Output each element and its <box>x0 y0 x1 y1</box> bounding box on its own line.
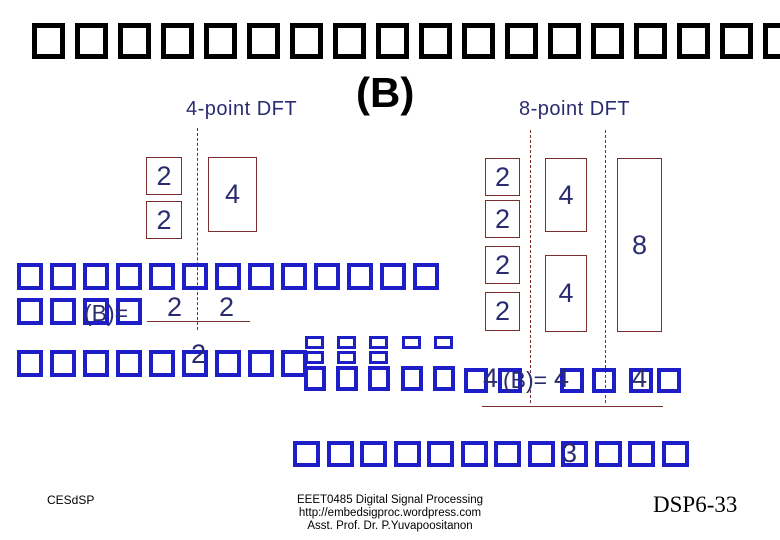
tofu-glyph-box <box>50 298 76 325</box>
paragraph1-b-equals-text: (B)= <box>84 302 128 325</box>
tofu-glyph-box <box>419 23 452 59</box>
tofu-glyph-box <box>83 350 109 377</box>
tofu-glyph-box <box>247 23 280 59</box>
tofu-glyph-box <box>281 263 307 290</box>
tofu-glyph-box <box>215 350 241 377</box>
tofu-glyph-box <box>494 441 521 467</box>
tofu-glyph-box <box>376 23 409 59</box>
tofu-glyph-box <box>347 263 373 290</box>
fraction2-bar <box>482 406 663 407</box>
left-dft-label: 4-point DFT <box>186 98 297 121</box>
tofu-glyph-box <box>75 23 108 59</box>
tofu-glyph-box <box>337 351 356 364</box>
tofu-glyph-box <box>116 350 142 377</box>
right-stage-divider-line-1 <box>530 130 531 403</box>
tofu-glyph-box <box>83 263 109 290</box>
right-dft-label: 8-point DFT <box>519 98 630 121</box>
tofu-glyph-box <box>149 350 175 377</box>
tofu-glyph-box <box>591 23 624 59</box>
footer-left-text: CESdSP <box>47 494 94 508</box>
tofu-glyph-box <box>17 263 43 290</box>
tofu-glyph-box <box>628 441 655 467</box>
right-8pt-dft-box: 8 <box>617 158 662 332</box>
fraction1-numerator-left: 2 <box>167 294 182 321</box>
footer-slide-number: DSP6-33 <box>653 492 737 518</box>
tofu-glyph-box <box>394 441 421 467</box>
tofu-glyph-box <box>720 23 753 59</box>
tofu-glyph-box <box>427 441 454 467</box>
tofu-glyph-box <box>401 366 423 391</box>
tofu-glyph-box <box>215 263 241 290</box>
tofu-glyph-box <box>657 368 681 393</box>
tofu-glyph-box <box>50 350 76 377</box>
tofu-glyph-box <box>369 351 388 364</box>
tofu-glyph-box <box>434 336 453 349</box>
fraction1-denominator: 2 <box>191 341 206 368</box>
tofu-glyph-box <box>305 351 324 364</box>
variant-label: (B) <box>356 72 414 114</box>
bottom-tofu-row <box>293 441 689 467</box>
tofu-glyph-box <box>548 23 581 59</box>
tofu-glyph-box <box>433 366 455 391</box>
tofu-glyph-box <box>677 23 710 59</box>
tofu-glyph-box <box>662 441 689 467</box>
paragraph2-number-2: 4 <box>554 365 569 392</box>
tofu-glyph-box <box>149 263 175 290</box>
paragraph1-line3-tofu-row <box>17 350 307 377</box>
right-4pt-dft-box-1: 4 <box>545 158 587 232</box>
footer-center-text: EEET0485 Digital Signal Processing http:… <box>270 494 510 533</box>
right-2pt-dft-box-1: 2 <box>485 158 520 196</box>
tofu-glyph-box <box>592 368 616 393</box>
tofu-glyph-box <box>528 441 555 467</box>
fraction1-bar <box>147 321 250 322</box>
right-2pt-dft-box-2: 2 <box>485 200 520 238</box>
tofu-glyph-box <box>204 23 237 59</box>
footer-url-line: http://embedsigproc.wordpress.com <box>270 507 510 520</box>
tofu-glyph-box <box>327 441 354 467</box>
tofu-glyph-box <box>461 441 488 467</box>
tofu-glyph-box <box>333 23 366 59</box>
left-2pt-dft-box-2: 2 <box>146 201 182 239</box>
left-4pt-dft-box: 4 <box>208 157 257 232</box>
paragraph2-number-3: 4 <box>632 365 647 392</box>
footer-author-line: Asst. Prof. Dr. P.Yuvapoositanon <box>270 520 510 533</box>
tofu-glyph-box <box>360 441 387 467</box>
tofu-glyph-box <box>314 263 340 290</box>
tofu-glyph-box <box>336 366 358 391</box>
tofu-glyph-box <box>116 263 142 290</box>
tofu-glyph-box <box>248 350 274 377</box>
paragraph2-b-equals-text: (B)= <box>503 369 547 392</box>
tofu-glyph-box <box>293 441 320 467</box>
left-2pt-dft-box-1: 2 <box>146 157 182 195</box>
bottom-line-number: 3 <box>562 440 577 467</box>
paragraph1-line1-tofu-row <box>17 263 439 290</box>
tofu-glyph-box <box>182 263 208 290</box>
tofu-glyph-box <box>337 336 356 349</box>
paragraph2-number-1: 4 <box>483 365 498 392</box>
tofu-glyph-box <box>462 23 495 59</box>
right-4pt-dft-box-2: 4 <box>545 255 587 332</box>
tofu-glyph-box <box>595 441 622 467</box>
tofu-glyph-box <box>17 298 43 325</box>
tofu-glyph-box <box>369 336 388 349</box>
tofu-glyph-box <box>380 263 406 290</box>
right-2pt-dft-box-4: 2 <box>485 292 520 331</box>
footer-course-line: EEET0485 Digital Signal Processing <box>270 494 510 507</box>
left-stage-divider-line <box>197 128 198 330</box>
tofu-glyph-box <box>413 263 439 290</box>
tofu-glyph-box <box>402 336 421 349</box>
tofu-glyph-box <box>32 23 65 59</box>
right-2pt-dft-box-3: 2 <box>485 246 520 284</box>
tofu-glyph-box <box>17 350 43 377</box>
tofu-glyph-box <box>634 23 667 59</box>
title-tofu-row <box>32 23 780 59</box>
tofu-glyph-box <box>763 23 780 59</box>
tofu-glyph-box <box>118 23 151 59</box>
slide-canvas: (B) 4-point DFT 8-point DFT 2 2 4 2 2 2 … <box>0 0 780 540</box>
tofu-glyph-box <box>248 263 274 290</box>
tofu-glyph-box <box>505 23 538 59</box>
tofu-glyph-box <box>368 366 390 391</box>
right-stage-divider-line-2 <box>605 130 606 403</box>
tofu-glyph-box <box>304 366 326 391</box>
tofu-glyph-box <box>161 23 194 59</box>
tofu-glyph-box <box>290 23 323 59</box>
tofu-glyph-box <box>305 336 324 349</box>
tofu-glyph-box <box>50 263 76 290</box>
fraction1-numerator-right: 2 <box>219 294 234 321</box>
